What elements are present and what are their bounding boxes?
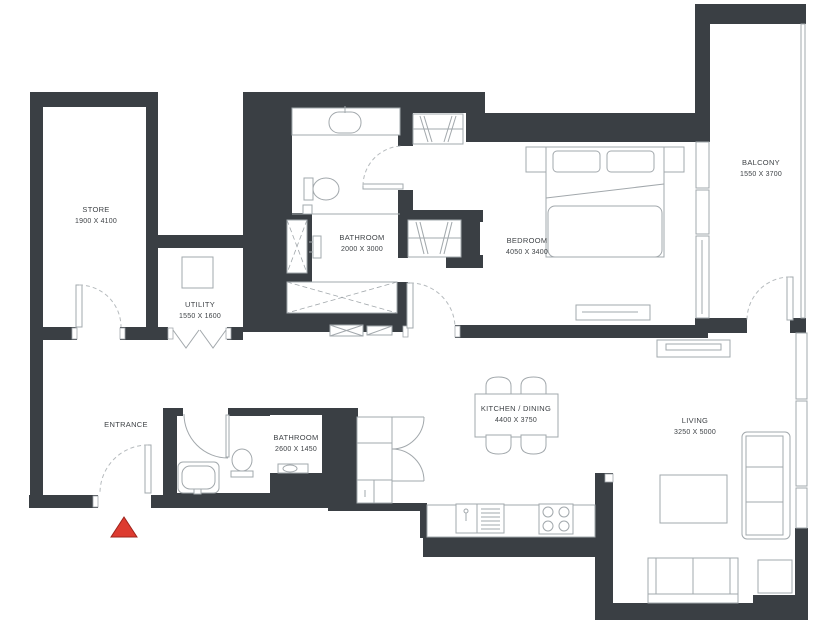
room-dims-balcony: 1550 X 3700 (740, 171, 782, 178)
bathroom-1-door (363, 146, 403, 189)
room-label-kitchen-dining: KITCHEN / DINING (481, 404, 551, 413)
dining-table (475, 394, 558, 437)
plan-shape (72, 328, 77, 339)
side-table (758, 560, 792, 593)
plan-shape (120, 328, 125, 339)
plan-shape (146, 248, 158, 340)
plan-shape (407, 283, 413, 328)
room-label-entrance: ENTRANCE (104, 420, 148, 429)
plan-shape (408, 325, 455, 338)
wardrobe (413, 114, 463, 144)
bedroom-window (696, 190, 709, 234)
fridge-double-doors (392, 417, 424, 481)
plan-shape (695, 4, 710, 142)
plan-shape (183, 408, 228, 416)
plan-shape (182, 257, 213, 288)
chair (486, 377, 511, 396)
living-window (796, 401, 807, 486)
room-dims-bathroom-2: 2600 X 1450 (275, 446, 317, 453)
pillow (553, 151, 600, 172)
plan-shape (151, 495, 163, 508)
plan-shape (328, 503, 427, 511)
toilet-bowl (313, 178, 339, 200)
bedroom-window (696, 142, 709, 188)
plan-shape (747, 318, 790, 333)
room-label-bathroom-1: BATHROOM (339, 233, 384, 242)
chair (521, 377, 546, 396)
kitchen-fixtures (427, 504, 595, 537)
plan-shape (423, 537, 597, 557)
plan-shape (392, 417, 424, 449)
pillow (607, 151, 654, 172)
plan-shape (98, 495, 146, 508)
coffee-table (660, 475, 727, 523)
room-dims-living: 3250 X 5000 (674, 429, 716, 436)
plan-shape (466, 113, 708, 142)
plan-shape (226, 415, 229, 457)
plan-shape (30, 92, 158, 107)
plan-shape (30, 92, 43, 340)
duvet (548, 206, 662, 257)
plan-shape (363, 184, 403, 189)
plan-shape (29, 495, 98, 508)
plan-shape (226, 328, 231, 339)
walls (29, 4, 808, 620)
plan-shape (363, 146, 403, 186)
plan-shape (595, 473, 613, 620)
plan-shape (145, 445, 151, 493)
plan-shape (398, 146, 413, 190)
plan-shape (318, 408, 358, 508)
plan-shape (795, 528, 808, 598)
room-label-utility: UTILITY (185, 300, 215, 309)
hall-cabinet (330, 325, 392, 336)
plan-shape (392, 449, 424, 481)
plan-shape (398, 218, 408, 258)
bathtub (178, 462, 219, 493)
room-dims-bedroom: 4050 X 3400 (506, 249, 548, 256)
sink (283, 465, 297, 472)
wall-notch (605, 474, 613, 482)
bedroom-furniture (526, 147, 684, 320)
towel-rail (313, 236, 321, 258)
plan-shape (747, 277, 790, 320)
nightstand (664, 147, 684, 172)
wardrobe (408, 220, 461, 257)
room-dims-utility: 1550 X 1600 (179, 313, 221, 320)
entrance-marker-icon (111, 517, 137, 537)
toilet-cistern (231, 471, 253, 477)
plan-shape (168, 328, 173, 339)
living-window (796, 488, 807, 528)
living-window (796, 333, 807, 399)
tub-tap (194, 489, 201, 494)
dining-set (475, 377, 558, 454)
nightstand (526, 147, 546, 172)
room-label-balcony: BALCONY (742, 158, 780, 167)
plan-shape (76, 285, 82, 327)
hall-closet (287, 282, 397, 313)
plan-shape (753, 595, 808, 620)
room-dims-kitchen-dining: 4400 X 3750 (495, 417, 537, 424)
plan-shape (455, 326, 460, 337)
plan-shape (303, 205, 312, 214)
plan-shape (77, 327, 120, 340)
room-label-store: STORE (82, 205, 109, 214)
plan-shape (695, 4, 806, 24)
tv-console (657, 340, 730, 357)
floor-plan: STORE 1900 X 4100 UTILITY 1550 X 1600 BA… (0, 0, 826, 637)
sink (329, 112, 361, 133)
balcony-door (747, 277, 793, 320)
plan-shape (168, 327, 227, 340)
plan-shape (146, 92, 158, 248)
kitchen-tall-cabinets (357, 417, 392, 503)
plan-shape (100, 445, 148, 493)
plan-shape (93, 496, 98, 507)
tall-closet (287, 220, 307, 273)
room-label-bedroom: BEDROOM (507, 236, 548, 245)
room-dims-bathroom-1: 2000 X 3000 (341, 246, 383, 253)
chair (521, 435, 546, 454)
chair (486, 435, 511, 454)
room-label-living: LIVING (682, 416, 708, 425)
plan-shape (30, 340, 43, 508)
living-furniture (648, 340, 792, 603)
plan-shape (455, 325, 708, 338)
plan-shape (79, 285, 121, 327)
room-label-bathroom-2: BATHROOM (273, 433, 318, 442)
balcony-railing (801, 24, 805, 318)
toilet-bowl (232, 449, 252, 471)
room-dims-store: 1900 X 4100 (75, 218, 117, 225)
plan-shape (146, 235, 243, 248)
utility-washer (182, 257, 213, 288)
plan-shape (30, 327, 77, 340)
plan-shape (613, 603, 753, 620)
plan-shape (120, 327, 173, 340)
toilet-cistern (304, 178, 313, 200)
plan-shape (410, 283, 455, 328)
plan-shape (787, 277, 793, 320)
